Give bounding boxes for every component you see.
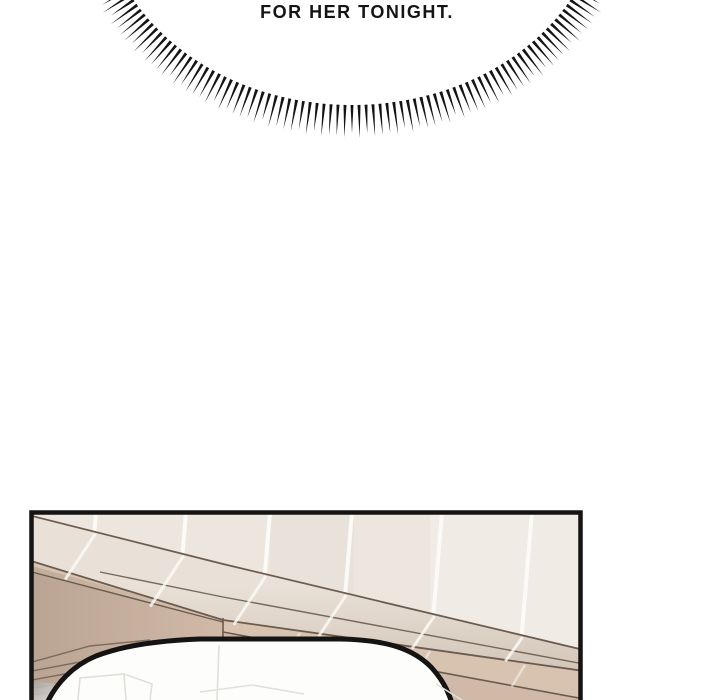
comic-art — [0, 0, 720, 700]
speech-text: FOR HER TONIGHT. — [0, 2, 714, 23]
comic-panel — [28, 512, 584, 700]
comic-page: FOR HER TONIGHT. — [0, 0, 720, 700]
